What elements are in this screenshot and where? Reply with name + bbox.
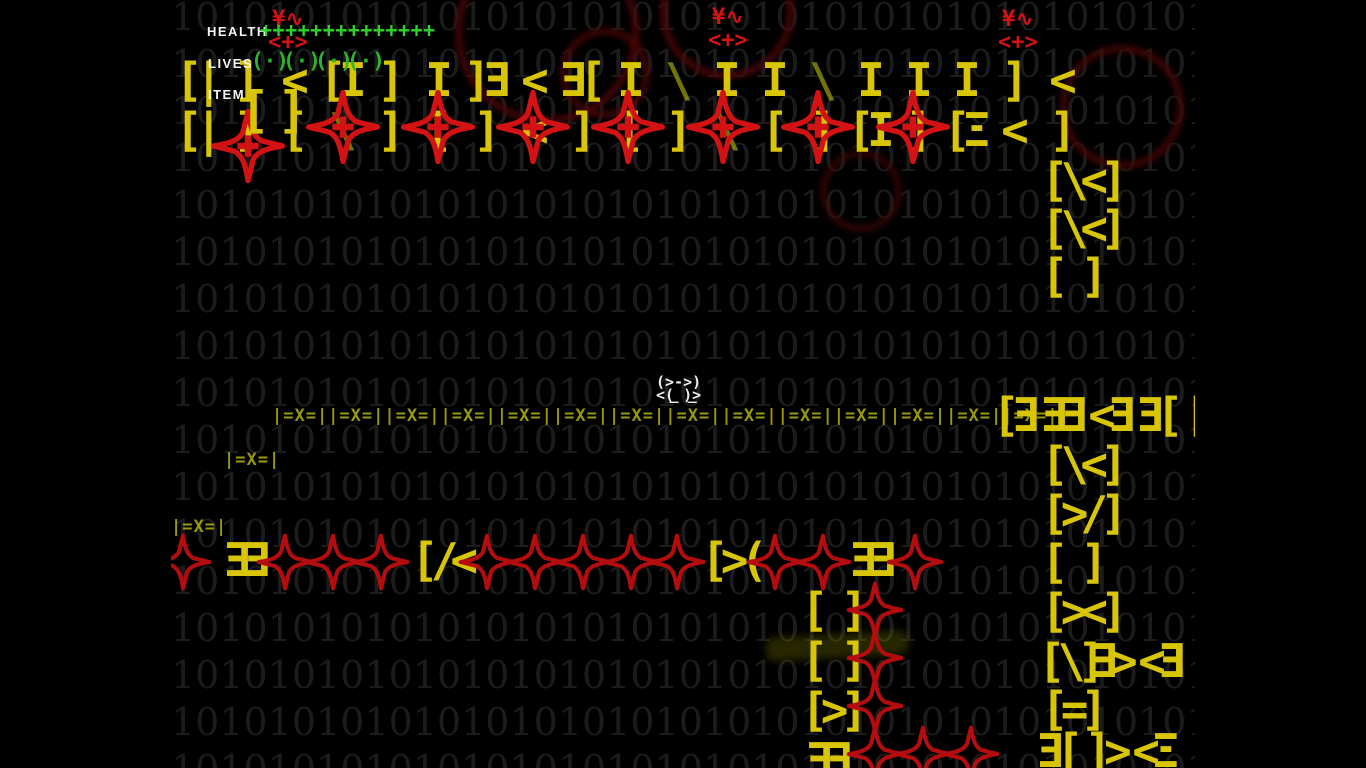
hud: HEALTH ++++++++++++++ LIVES (·)(·)(·)(·)… (171, 0, 1195, 768)
game-screen[interactable]: 1010101010101010101010101010101010101010… (0, 0, 1366, 768)
health-label: HEALTH (207, 24, 268, 39)
life-icon: (·) (347, 49, 385, 73)
lives-label: LIVES (208, 56, 253, 71)
health-bar: ++++++++++++++ (260, 18, 436, 42)
item-slot-icon: [] (240, 82, 314, 138)
game-area: 1010101010101010101010101010101010101010… (171, 0, 1195, 768)
